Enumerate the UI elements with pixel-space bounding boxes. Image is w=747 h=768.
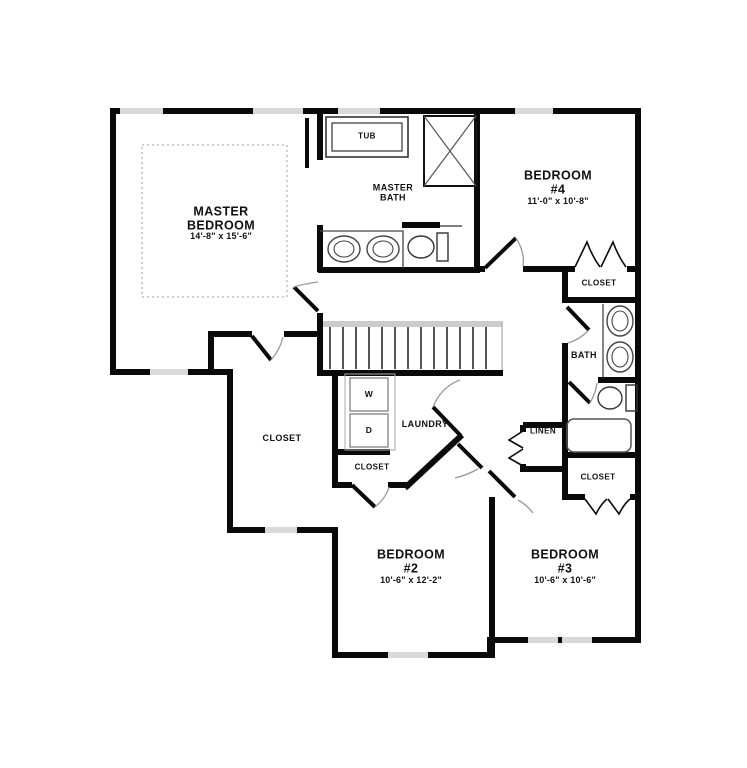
bedroom2-closet-label: CLOSET <box>355 462 390 471</box>
bedroom4-label: BEDROOM #4 <box>518 169 598 198</box>
washer-label: W <box>365 390 373 400</box>
master-closet-label: CLOSET <box>263 433 302 443</box>
master-bath-label: MASTER BATH <box>364 183 422 204</box>
master-bedroom-dims: 14'-8" x 15'-6" <box>190 231 252 241</box>
master-toilet-icon <box>408 226 462 261</box>
bedroom4-dims: 11'-0" x 10'-8" <box>527 196 588 206</box>
master-vanity-sinks-icon <box>320 231 403 268</box>
bedroom3-label: BEDROOM #3 <box>525 548 605 577</box>
bedroom4-closet-label: CLOSET <box>582 278 617 287</box>
linen-label: LINEN <box>530 426 556 435</box>
hall-toilet-icon <box>598 385 637 411</box>
master-bedroom-label: MASTER BEDROOM <box>166 205 276 234</box>
stairs-icon <box>323 321 503 371</box>
dryer-label: D <box>366 426 373 436</box>
hall-tub-icon <box>567 419 631 452</box>
bath-closet-label: CLOSET <box>581 472 616 481</box>
bath-label: BATH <box>571 350 597 360</box>
floor-plan-drawing <box>0 0 747 768</box>
shower-icon <box>424 116 476 186</box>
hall-vanity-sinks-icon <box>603 304 633 377</box>
laundry-label: LAUNDRY <box>402 419 448 429</box>
bedroom2-dims: 10'-6" x 12'-2" <box>380 575 442 585</box>
bedroom3-dims: 10'-6" x 10'-6" <box>534 575 596 585</box>
tub-label: TUB <box>358 131 376 140</box>
floor-plan: MASTER BEDROOM 14'-8" x 15'-6" TUB MASTE… <box>0 0 747 768</box>
washer-dryer-icon <box>345 374 395 450</box>
bedroom2-label: BEDROOM #2 <box>371 548 451 577</box>
